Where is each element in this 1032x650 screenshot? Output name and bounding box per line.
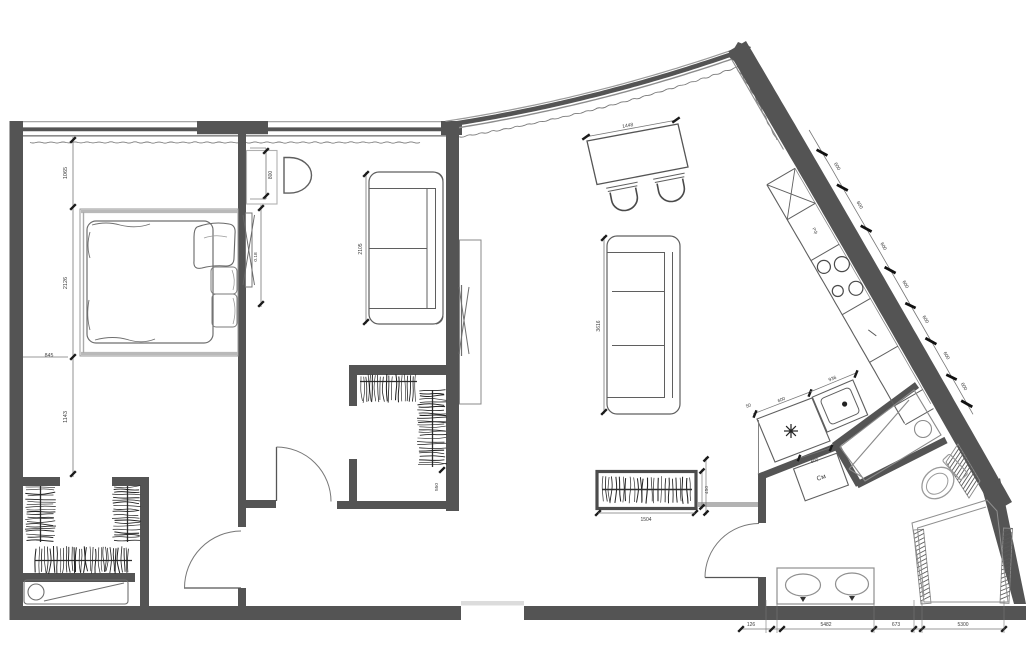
svg-text:550: 550 <box>434 483 440 491</box>
svg-text:5300: 5300 <box>957 622 968 628</box>
svg-text:См: См <box>816 473 828 483</box>
svg-text:600: 600 <box>921 315 930 325</box>
svg-text:3616: 3616 <box>596 320 602 331</box>
svg-text:600: 600 <box>900 280 909 290</box>
svg-text:673: 673 <box>892 622 901 628</box>
svg-text:2105: 2105 <box>358 243 364 254</box>
svg-text:126: 126 <box>747 622 756 628</box>
svg-text:600: 600 <box>832 162 841 172</box>
svg-text:600: 600 <box>878 242 887 252</box>
svg-text:1448: 1448 <box>622 122 634 130</box>
svg-text:1504: 1504 <box>640 517 651 523</box>
svg-text:5482: 5482 <box>820 622 831 628</box>
svg-text:1065: 1065 <box>63 167 69 179</box>
svg-text:450: 450 <box>704 486 710 494</box>
svg-text:600: 600 <box>810 457 819 464</box>
svg-text:Рф: Рф <box>811 227 819 236</box>
svg-text:50: 50 <box>745 402 752 409</box>
svg-text:0.18: 0.18 <box>253 252 259 262</box>
svg-text:600: 600 <box>959 382 968 392</box>
svg-text:845: 845 <box>45 353 54 359</box>
svg-text:600: 600 <box>941 351 950 361</box>
svg-text:1143: 1143 <box>63 411 69 423</box>
svg-text:600: 600 <box>855 200 864 210</box>
svg-text:600: 600 <box>777 396 786 404</box>
svg-text:936: 936 <box>828 375 838 384</box>
svg-text:800: 800 <box>268 171 274 180</box>
svg-text:2126: 2126 <box>63 277 69 289</box>
